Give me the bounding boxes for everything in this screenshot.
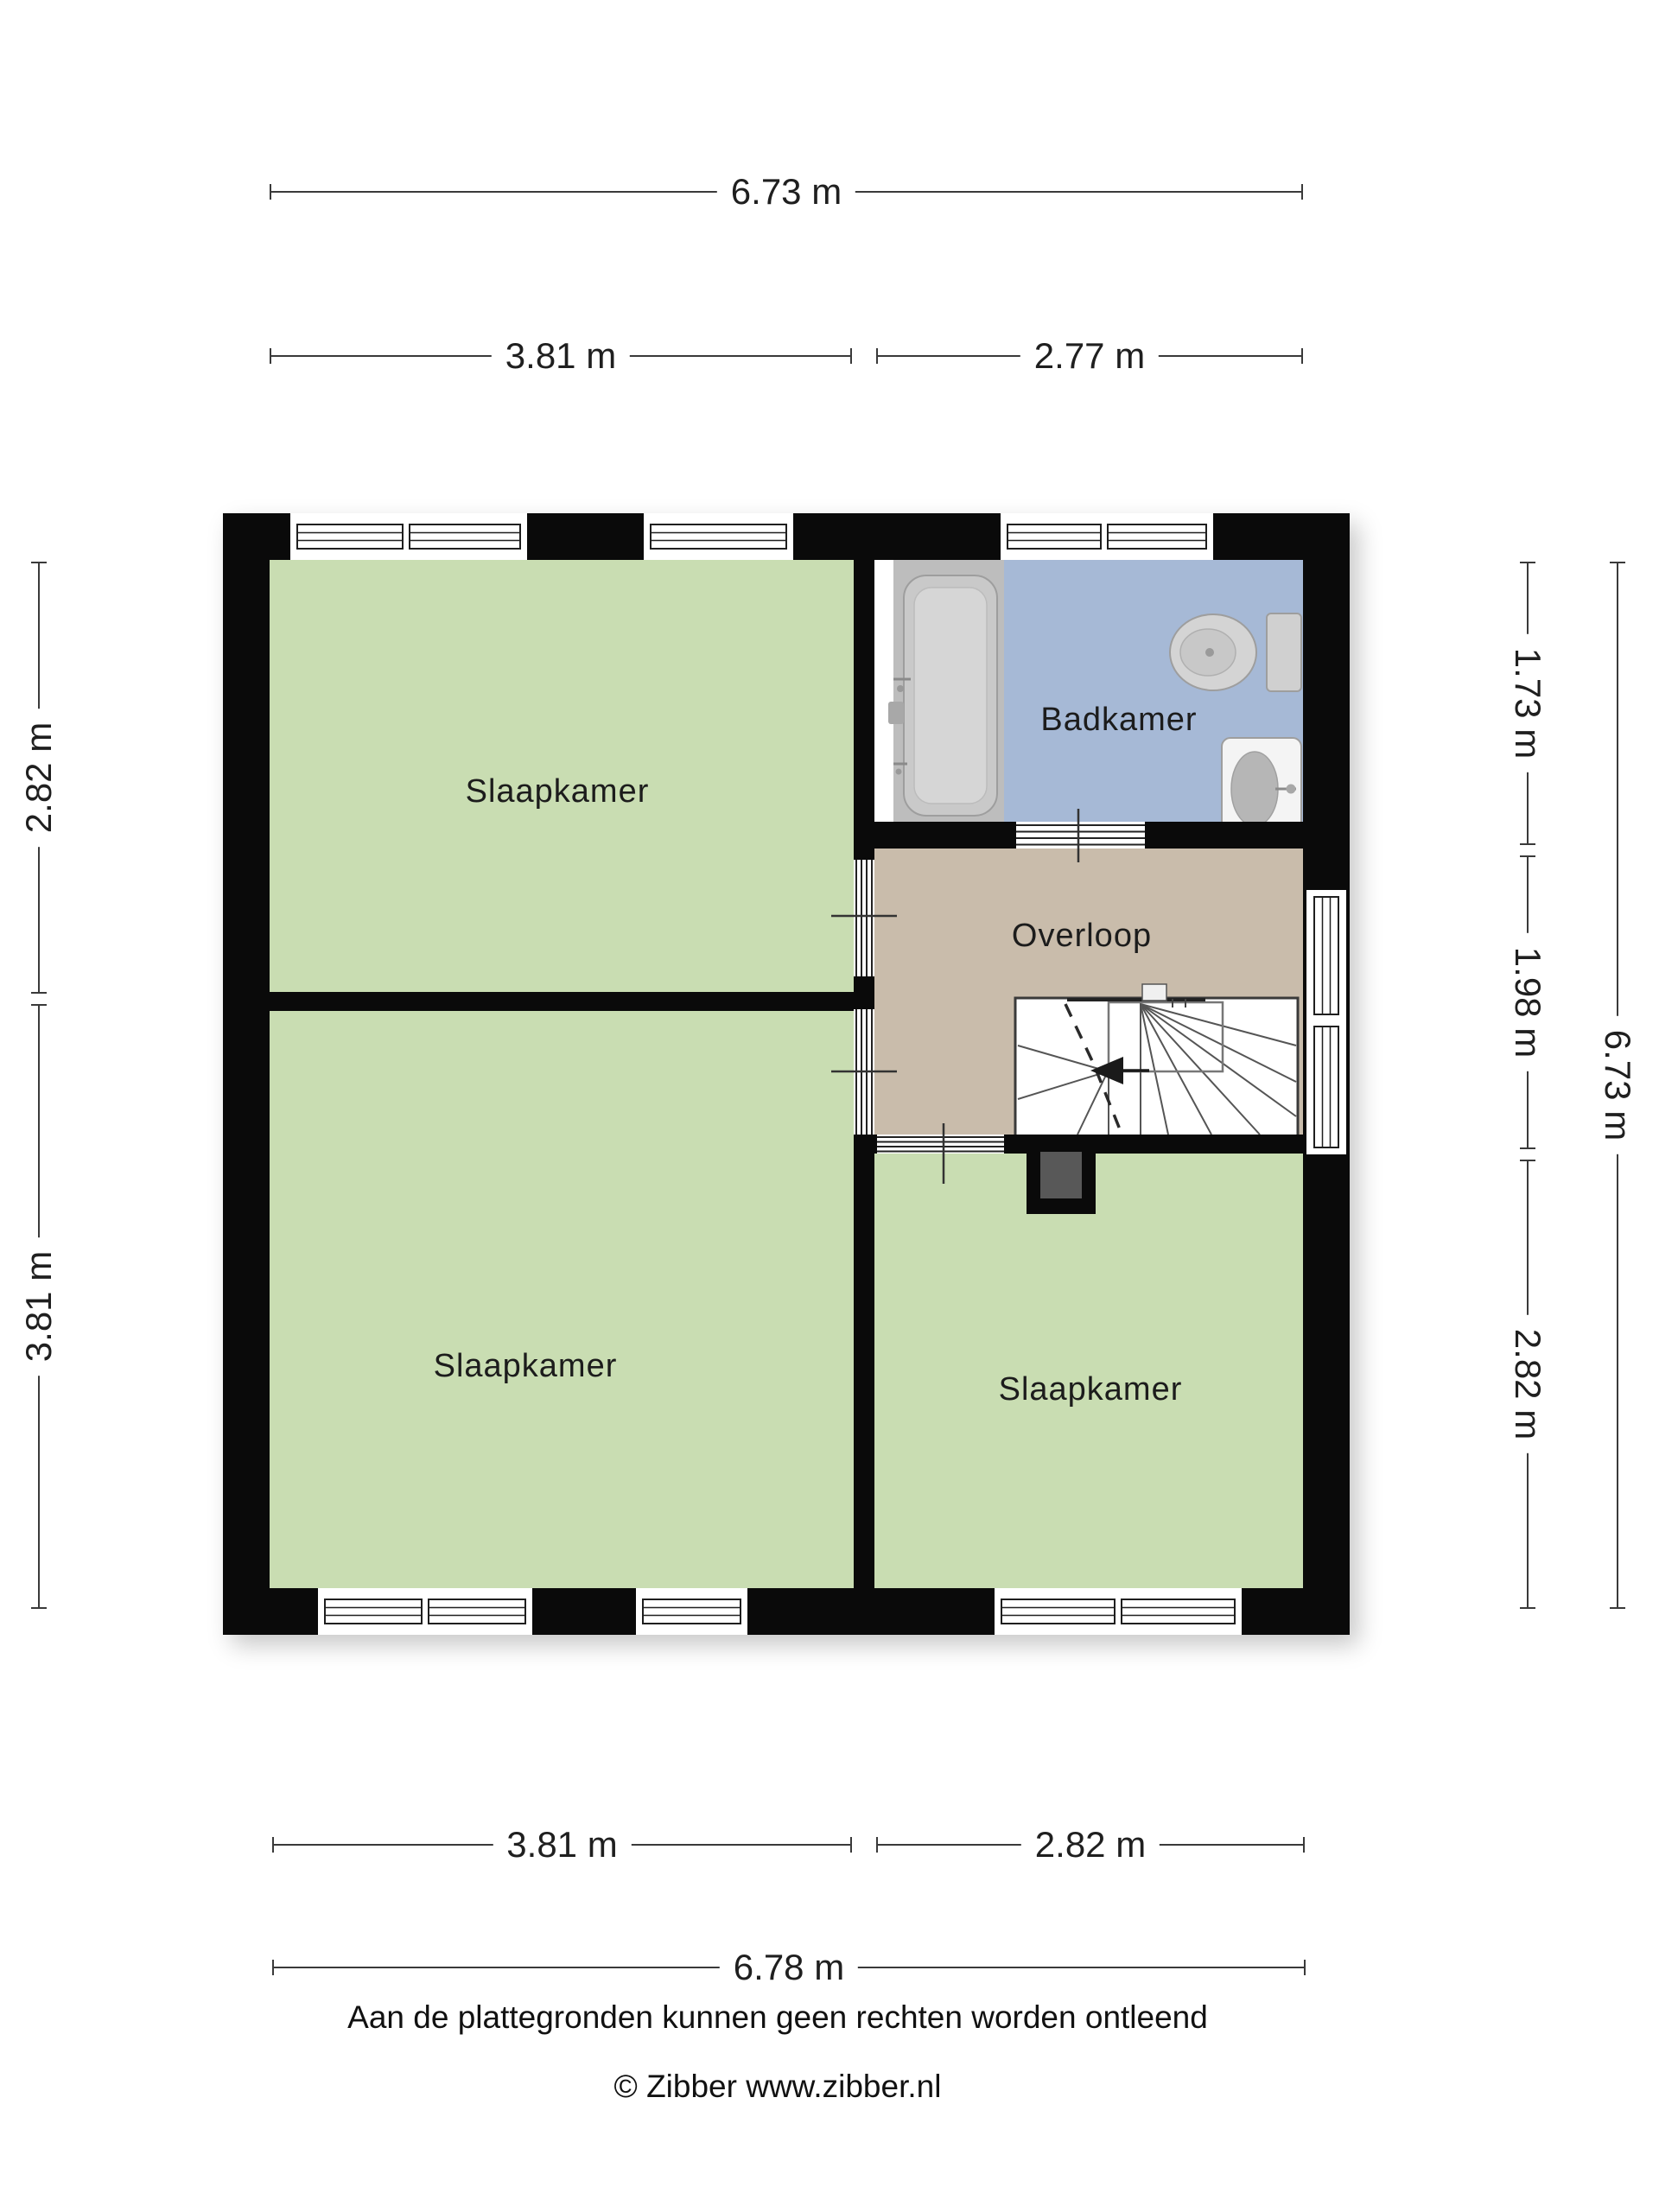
window-top-3 xyxy=(1001,513,1213,560)
toilet xyxy=(1170,613,1301,691)
floorplan-page: 6.73 m 3.81 m 2.77 m 2.82 m 3.81 m 1.73 … xyxy=(0,0,1659,2212)
staircase xyxy=(1015,984,1298,1136)
room-label-bedroom-bottom-right: Slaapkamer xyxy=(999,1371,1183,1408)
footer-copyright: © Zibber www.zibber.nl xyxy=(0,2069,1555,2105)
room-label-landing: Overloop xyxy=(1012,918,1152,954)
wall-left xyxy=(223,513,270,1635)
window-top-1 xyxy=(290,513,527,560)
window-bottom-1 xyxy=(318,1588,532,1635)
bathtub xyxy=(874,560,1004,822)
floorplan-svg: Slaapkamer Badkamer Overloop Slaapkamer … xyxy=(0,0,1659,2212)
room-label-bedroom-top-left: Slaapkamer xyxy=(466,773,650,810)
window-bottom-3 xyxy=(995,1588,1242,1635)
wall-between-left-bedrooms xyxy=(270,992,854,1011)
window-bottom-2 xyxy=(636,1588,747,1635)
room-bedroom-bottom-left-floor xyxy=(270,1011,854,1588)
window-right xyxy=(1306,890,1346,1154)
chimney-inner xyxy=(1040,1152,1082,1198)
window-top-2 xyxy=(644,513,793,560)
room-label-bathroom: Badkamer xyxy=(1040,702,1197,738)
stair-landing-marker xyxy=(1142,984,1166,1001)
footer-disclaimer: Aan de plattegronden kunnen geen rechten… xyxy=(0,1999,1555,2036)
room-label-bedroom-bottom-left: Slaapkamer xyxy=(434,1348,618,1384)
